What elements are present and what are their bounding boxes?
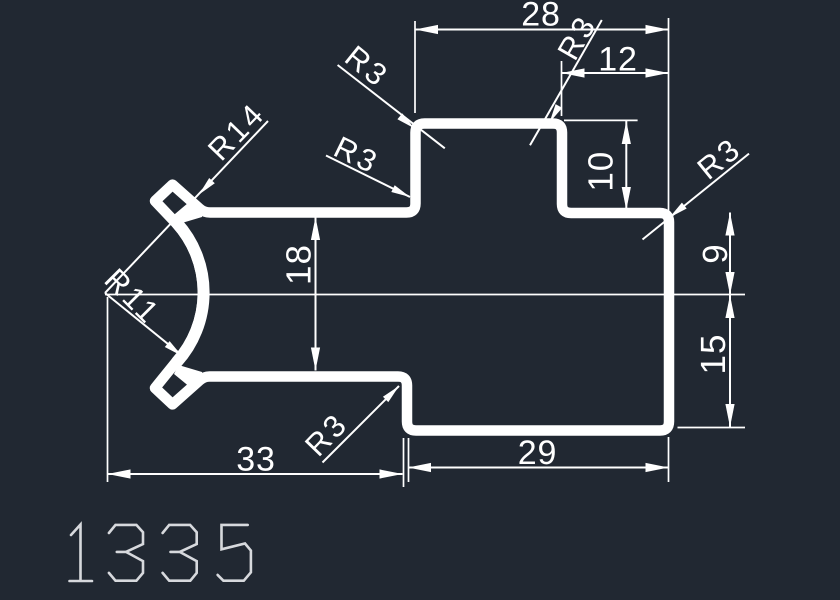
svg-text:R14: R14 [201, 96, 272, 168]
svg-text:R3: R3 [298, 406, 355, 463]
svg-text:R3: R3 [329, 129, 385, 180]
svg-text:29: 29 [518, 434, 557, 472]
svg-text:12: 12 [598, 40, 637, 78]
svg-text:33: 33 [236, 440, 275, 478]
svg-text:18: 18 [280, 244, 319, 285]
svg-text:R3: R3 [338, 39, 395, 95]
svg-text:R3: R3 [691, 131, 748, 187]
svg-text:9: 9 [696, 243, 735, 263]
svg-text:15: 15 [694, 334, 733, 375]
svg-text:10: 10 [582, 151, 621, 192]
svg-text:28: 28 [521, 0, 560, 33]
